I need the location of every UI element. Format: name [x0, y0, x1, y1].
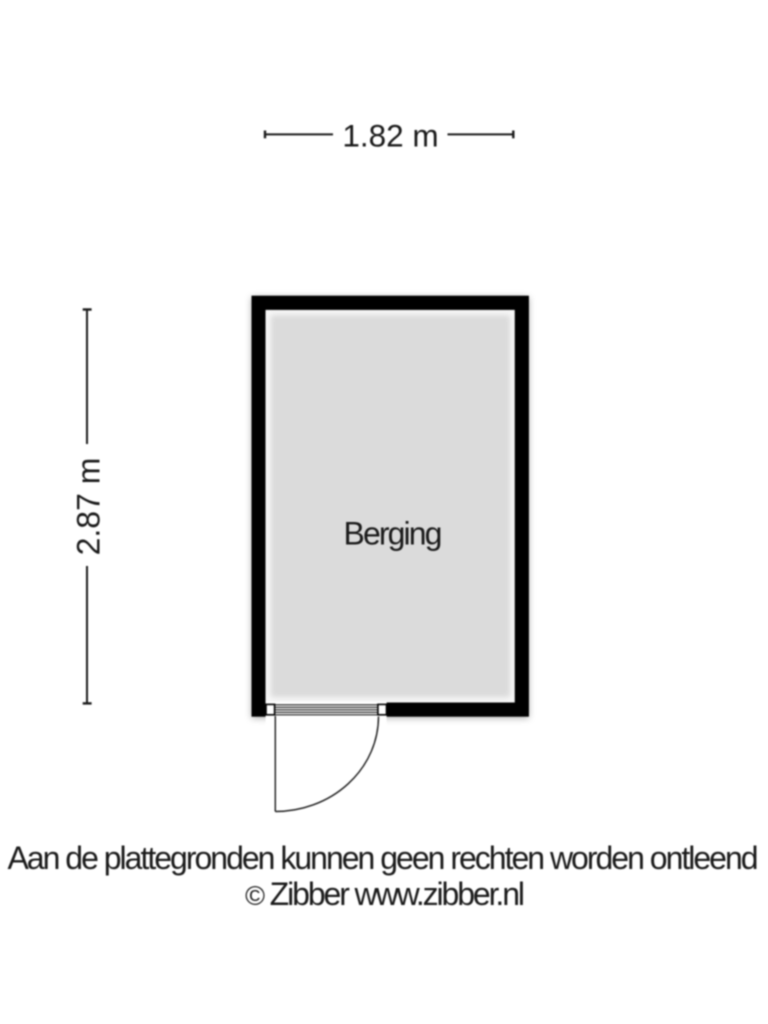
svg-text:Berging: Berging: [344, 515, 441, 551]
svg-text:© Zibber www.zibber.nl: © Zibber www.zibber.nl: [245, 876, 523, 912]
svg-text:1.82 m: 1.82 m: [342, 117, 438, 153]
svg-text:2.87 m: 2.87 m: [70, 458, 106, 556]
svg-text:Aan de plattegronden kunnen ge: Aan de plattegronden kunnen geen rechten…: [7, 840, 756, 876]
